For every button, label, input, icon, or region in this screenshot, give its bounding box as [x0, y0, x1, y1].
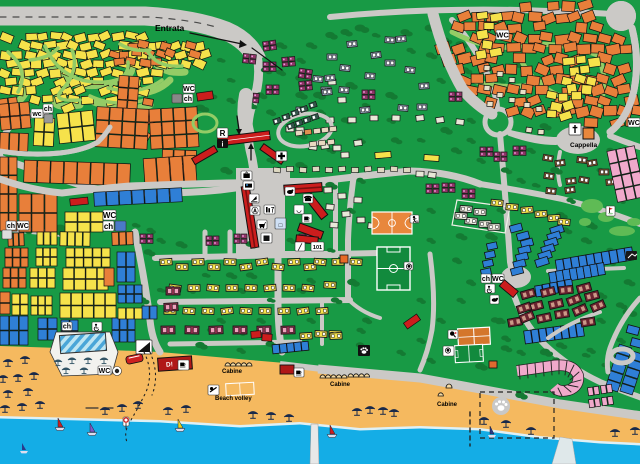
svg-text:wc: wc: [31, 111, 41, 118]
svg-text:ch: ch: [7, 223, 15, 230]
svg-text:Cabine: Cabine: [330, 382, 351, 388]
svg-text:Cappella: Cappella: [570, 142, 597, 149]
svg-text:ch: ch: [482, 276, 490, 283]
svg-text:R: R: [220, 129, 226, 138]
svg-text:WC: WC: [628, 120, 640, 127]
svg-text:□: □: [279, 223, 283, 229]
svg-text:ch: ch: [104, 222, 113, 231]
svg-text:Cabine: Cabine: [437, 402, 458, 408]
svg-text:101: 101: [313, 245, 322, 251]
svg-text:ch: ch: [63, 324, 71, 331]
svg-text:◡: ◡: [296, 208, 302, 214]
svg-text:WC: WC: [17, 223, 29, 230]
svg-text:Ⓐ: Ⓐ: [252, 206, 259, 215]
svg-text:Cabine: Cabine: [222, 369, 243, 375]
svg-text:WC: WC: [496, 31, 509, 40]
svg-text:ch: ch: [184, 96, 192, 103]
svg-text:ch: ch: [44, 106, 52, 113]
svg-text:Entrata: Entrata: [155, 23, 185, 33]
svg-text:WC: WC: [183, 86, 195, 93]
svg-text:WC: WC: [103, 211, 117, 220]
svg-text:☎: ☎: [304, 195, 313, 203]
svg-text:WC: WC: [99, 368, 111, 375]
svg-text:D!: D!: [166, 361, 173, 368]
svg-text:Beach volley: Beach volley: [215, 396, 252, 402]
svg-text:i: i: [222, 142, 224, 149]
